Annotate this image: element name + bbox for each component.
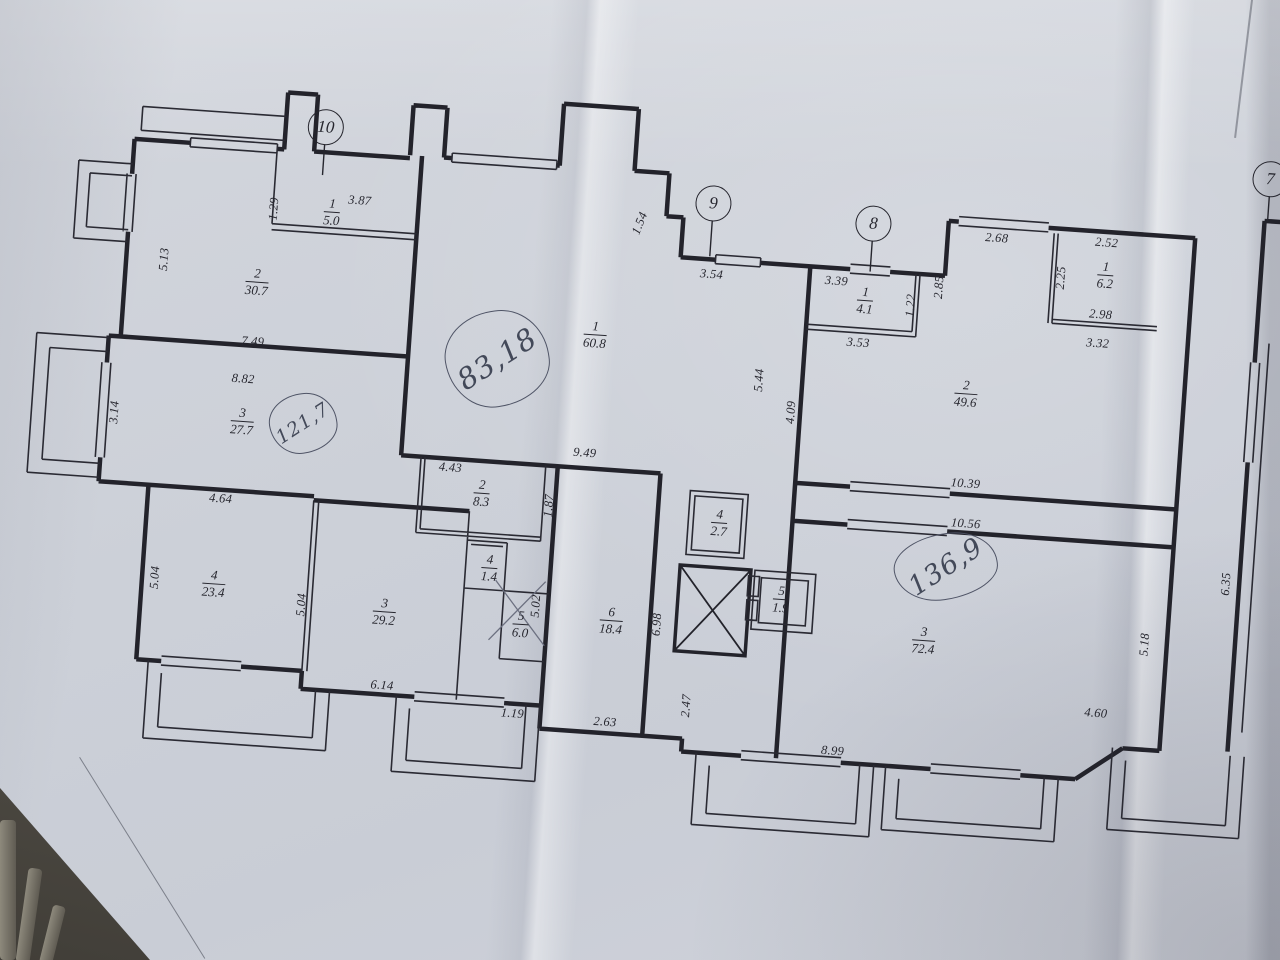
dimension-label: 1.87: [541, 494, 558, 518]
dimension-label: 8.99: [821, 743, 845, 760]
dimension-label: 4.60: [1084, 705, 1108, 722]
dimension-label: 8.82: [231, 371, 255, 388]
dimension-label: 5.02: [528, 594, 545, 618]
handwritten-total: 83,18: [451, 321, 543, 397]
dimension-label: 1.19: [500, 705, 524, 722]
room-label: 230.7: [244, 266, 269, 298]
dimension-label: 3.53: [846, 335, 870, 352]
floor-plan: 10 9 8 7 83,18 121,7 136,9 15.0 230.7 32…: [0, 0, 1280, 960]
dimension-label: 5.04: [147, 565, 164, 589]
room-label: 372.4: [911, 624, 936, 656]
room-label: 16.2: [1096, 259, 1114, 290]
dimension-label: 5.44: [751, 368, 768, 392]
room-label: 423.4: [201, 568, 226, 600]
room-label: 51.9: [772, 583, 790, 614]
room-label: 42.7: [710, 507, 728, 538]
room-label: 28.3: [473, 477, 491, 508]
dimension-label: 5.04: [293, 593, 310, 617]
photo-of-floor-plan: 10 9 8 7 83,18 121,7 136,9 15.0 230.7 32…: [0, 0, 1280, 960]
dimension-label: 1.29: [266, 197, 283, 221]
floorplan-linework: [0, 0, 1280, 960]
dimension-label: 10.56: [950, 515, 981, 532]
elevator-x-icon: [674, 565, 751, 656]
room-label: 41.4: [480, 552, 498, 583]
dimension-label: 3.32: [1086, 335, 1110, 352]
dimension-label: 4.43: [438, 459, 462, 476]
dimension-label: 2.68: [985, 230, 1009, 247]
dimension-label: 2.47: [678, 694, 695, 718]
room-label: 14.1: [856, 285, 874, 316]
room-label: 618.4: [599, 604, 624, 636]
dimension-label: 3.54: [699, 266, 723, 283]
axis-number: 10: [317, 117, 335, 138]
dimension-label: 2.85: [931, 275, 948, 299]
dimension-label: 2.25: [1053, 266, 1070, 290]
axis-number: 7: [1266, 169, 1276, 190]
handwritten-total: 121,7: [272, 398, 334, 449]
dimension-label: 10.39: [950, 475, 981, 492]
dimension-label: 1.22: [903, 293, 920, 317]
dimension-label: 5.13: [156, 247, 173, 271]
dimension-label: 5.18: [1136, 633, 1153, 657]
dimension-label: 2.98: [1089, 306, 1113, 323]
dimension-label: 7.49: [241, 333, 265, 350]
dimension-label: 3.87: [348, 192, 372, 209]
room-label: 160.8: [583, 319, 608, 351]
room-label: 249.6: [953, 378, 978, 410]
room-label: 15.0: [323, 196, 341, 227]
dimension-label: 3.14: [106, 400, 123, 424]
axis-tick-lines: [318, 130, 1269, 299]
dimension-label: 4.64: [209, 491, 233, 508]
dimension-label: 3.39: [824, 273, 848, 290]
dimension-label: 6.35: [1218, 572, 1235, 596]
dimension-label: 4.09: [783, 400, 800, 424]
axis-number: 8: [869, 213, 879, 234]
dimension-label: 2.52: [1095, 235, 1119, 252]
dimension-label: 2.63: [593, 714, 617, 731]
dimension-label: 6.98: [649, 613, 666, 637]
room-label: 327.7: [230, 405, 255, 437]
room-label: 329.2: [372, 596, 397, 628]
walls-main: [83, 73, 1280, 792]
dimension-label: 6.14: [370, 677, 394, 694]
axis-number: 9: [709, 193, 719, 214]
dimension-label: 9.49: [573, 445, 597, 462]
